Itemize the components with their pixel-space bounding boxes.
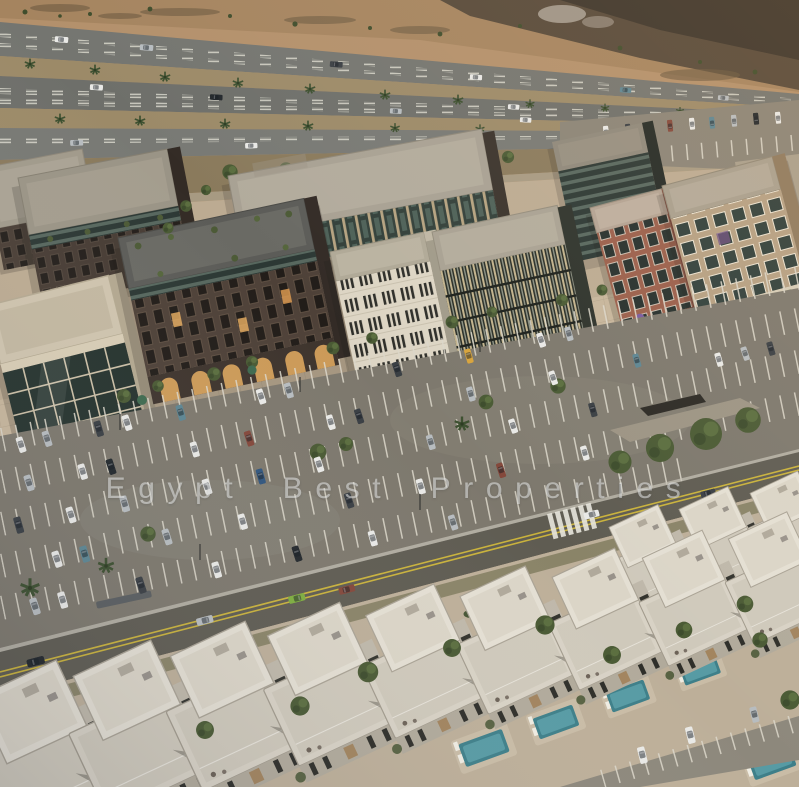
light-grade-overlay bbox=[0, 0, 799, 787]
aerial-render-image: Egypt Best Properties bbox=[0, 0, 799, 787]
scene-canvas bbox=[0, 0, 799, 787]
